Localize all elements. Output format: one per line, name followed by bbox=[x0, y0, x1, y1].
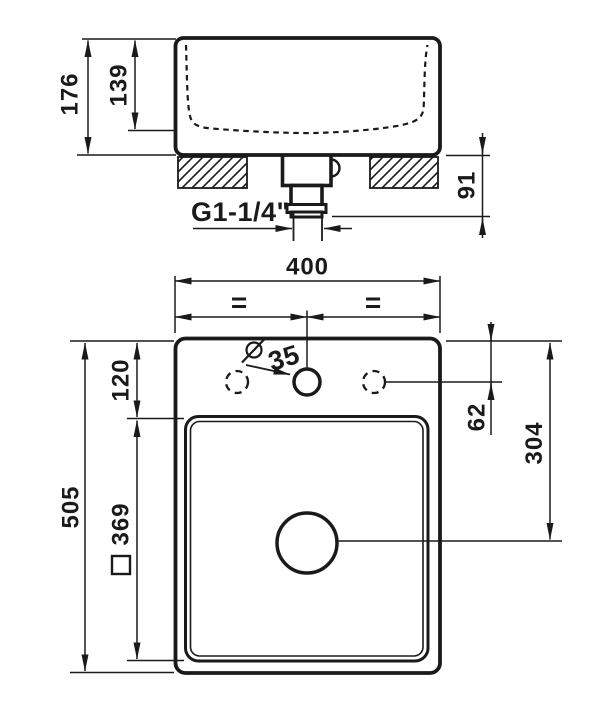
dim-label-overall-width: 400 bbox=[286, 254, 329, 281]
dim-label-edge-to-drain: 304 bbox=[521, 421, 548, 464]
dim-label-basin-size: 369 bbox=[108, 502, 135, 545]
drain-hole bbox=[277, 513, 337, 573]
mounting-pad-right bbox=[370, 157, 438, 188]
sink-body-outline bbox=[176, 38, 441, 155]
drain-tip-ring-lower bbox=[291, 212, 322, 217]
dim-label-drain-thread: G1-1/4" bbox=[191, 197, 290, 227]
dim-label-edge-to-faucet: 62 bbox=[464, 403, 491, 432]
dim-label-total-height: 176 bbox=[57, 72, 84, 115]
mounting-pad-left bbox=[178, 157, 247, 188]
dim-basin-depth: 139 bbox=[106, 41, 178, 131]
square-symbol bbox=[112, 556, 130, 574]
dim-label-drain-height: 91 bbox=[454, 171, 481, 200]
dim-edge-to-basin: 120 bbox=[108, 343, 138, 417]
dim-label-overall-depth: 505 bbox=[58, 485, 85, 528]
dim-label-basin-depth: 139 bbox=[106, 63, 133, 106]
dim-label-edge-to-basin: 120 bbox=[108, 358, 135, 401]
drawing-page: 176 139 91 G1-1/4" bbox=[0, 0, 605, 712]
faucet-hole bbox=[294, 369, 320, 395]
equal-symbol-right: = bbox=[365, 287, 381, 318]
side-view: 176 139 91 G1-1/4" bbox=[57, 38, 491, 241]
washbasin-technical-drawing: 176 139 91 G1-1/4" bbox=[0, 0, 605, 712]
drain-thread-section bbox=[291, 186, 322, 206]
dim-drain-thread: G1-1/4" bbox=[191, 197, 352, 241]
dim-basin-size: 369 bbox=[108, 419, 185, 661]
equal-symbol-left: = bbox=[231, 287, 247, 318]
plan-view: 400 = = 35 62 304 bbox=[58, 254, 563, 674]
drain-flange bbox=[283, 155, 332, 186]
